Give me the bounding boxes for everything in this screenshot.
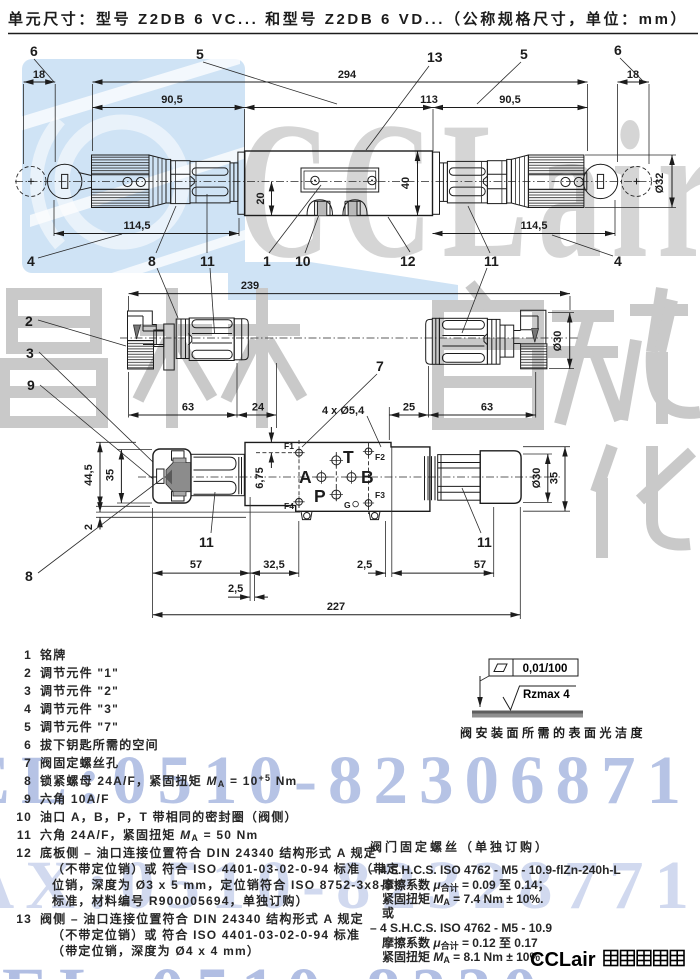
svg-text:63: 63 <box>481 402 493 414</box>
svg-text:调节元件 "1": 调节元件 "1" <box>40 665 119 680</box>
svg-text:239: 239 <box>241 280 259 292</box>
svg-text:阀侧 – 油口连接位置符合 DIN 24340 结构形式 A: 阀侧 – 油口连接位置符合 DIN 24340 结构形式 A 规定 <box>40 911 364 926</box>
svg-text:1: 1 <box>263 253 271 269</box>
svg-text:57: 57 <box>474 559 486 571</box>
svg-text:CCLair: CCLair <box>530 949 596 971</box>
svg-text:Ø30: Ø30 <box>552 331 564 352</box>
svg-text:9: 9 <box>24 792 32 806</box>
svg-text:90,5: 90,5 <box>499 94 520 106</box>
svg-text:F2: F2 <box>375 452 385 462</box>
svg-text:F4: F4 <box>284 501 294 511</box>
svg-text:113: 113 <box>420 94 438 106</box>
svg-text:5: 5 <box>24 720 32 734</box>
svg-text:调节元件 "3": 调节元件 "3" <box>40 701 119 716</box>
svg-text:（不带定位销）或 符合 ISO 4401-03-02-0-9: （不带定位销）或 符合 ISO 4401-03-02-0-94 标准（带定 <box>52 861 400 876</box>
svg-text:3: 3 <box>26 345 34 361</box>
svg-text:4: 4 <box>614 253 622 269</box>
svg-text:– 4 S.H.C.S. ISO 4762 - M5 - 1: – 4 S.H.C.S. ISO 4762 - M5 - 10.9 <box>370 921 552 935</box>
svg-text:或: 或 <box>382 905 394 920</box>
svg-text:9: 9 <box>27 377 35 393</box>
svg-text:调节元件 "7": 调节元件 "7" <box>40 719 119 734</box>
svg-text:阀门固定螺丝（单独订购）: 阀门固定螺丝（单独订购） <box>370 839 550 854</box>
svg-text:11: 11 <box>199 534 214 550</box>
svg-text:6: 6 <box>30 43 38 59</box>
svg-text:44,5: 44,5 <box>83 464 95 485</box>
svg-text:6: 6 <box>614 42 622 58</box>
svg-text:Ø32: Ø32 <box>654 173 666 194</box>
svg-text:13: 13 <box>427 49 443 65</box>
svg-text:2,5: 2,5 <box>357 559 372 571</box>
svg-text:– 4 S.H.C.S. ISO 4762 - M5 - 1: – 4 S.H.C.S. ISO 4762 - M5 - 10.9-flZn-2… <box>370 863 621 877</box>
svg-text:8: 8 <box>24 774 32 788</box>
svg-text:6: 6 <box>24 738 32 752</box>
svg-text:114,5: 114,5 <box>124 220 151 232</box>
svg-text:8: 8 <box>25 568 33 584</box>
svg-text:90,5: 90,5 <box>161 94 182 106</box>
svg-text:20: 20 <box>255 192 267 204</box>
svg-text:4: 4 <box>27 253 35 269</box>
svg-text:32,5: 32,5 <box>263 559 284 571</box>
svg-text:位销，深度为 Ø3 x 5 mm，定位销符合 ISO 875: 位销，深度为 Ø3 x 5 mm，定位销符合 ISO 8752-3x8-St <box>52 877 400 892</box>
svg-text:4: 4 <box>24 702 32 716</box>
svg-text:2: 2 <box>25 313 33 329</box>
svg-text:铭牌: 铭牌 <box>40 647 66 662</box>
svg-text:11: 11 <box>484 253 499 269</box>
svg-text:57: 57 <box>190 559 202 571</box>
svg-text:调节元件 "2": 调节元件 "2" <box>40 683 119 698</box>
svg-text:G: G <box>344 500 351 510</box>
svg-text:（不带定位销）或 符合 ISO 4401-03-02-0-9: （不带定位销）或 符合 ISO 4401-03-02-0-94 标准 <box>52 927 360 942</box>
svg-text:7: 7 <box>24 756 32 770</box>
svg-text:油口 A，B，P，T 带相同的密封圈（阀侧）: 油口 A，B，P，T 带相同的密封圈（阀侧） <box>40 809 298 824</box>
svg-text:Ø30: Ø30 <box>531 468 543 489</box>
svg-text:阀安装面所需的表面光洁度: 阀安装面所需的表面光洁度 <box>460 725 646 740</box>
svg-text:F1: F1 <box>284 441 294 451</box>
svg-text:25: 25 <box>403 402 415 414</box>
svg-text:1: 1 <box>24 648 32 662</box>
svg-text:6,75: 6,75 <box>254 467 266 488</box>
svg-text:227: 227 <box>327 601 345 613</box>
svg-text:35: 35 <box>549 472 561 484</box>
svg-text:六角 10A/F: 六角 10A/F <box>40 791 110 806</box>
svg-text:11: 11 <box>200 253 215 269</box>
svg-text:阀固定螺丝孔: 阀固定螺丝孔 <box>40 755 119 770</box>
svg-text:2: 2 <box>24 666 32 680</box>
svg-text:11: 11 <box>17 828 32 842</box>
svg-text:24: 24 <box>252 402 265 414</box>
svg-text:六角 24A/F，紧固扭矩 MA = 50 Nm: 六角 24A/F，紧固扭矩 MA = 50 Nm <box>40 827 258 843</box>
svg-text:紧固扭矩 MA = 8.1 Nm ± 10%: 紧固扭矩 MA = 8.1 Nm ± 10% <box>382 949 540 965</box>
svg-text:12: 12 <box>16 846 32 860</box>
svg-text:A: A <box>299 467 312 487</box>
svg-text:2: 2 <box>83 524 95 530</box>
svg-text:7: 7 <box>376 358 384 374</box>
svg-text:114,5: 114,5 <box>521 220 548 232</box>
svg-text:10: 10 <box>295 253 311 269</box>
svg-text:11: 11 <box>477 534 492 550</box>
svg-text:摩擦系数 μ合计 = 0.09 至 0.14；: 摩擦系数 μ合计 = 0.09 至 0.14； <box>382 877 550 893</box>
svg-text:摩擦系数 μ合计 = 0.12 至 0.17: 摩擦系数 μ合计 = 0.12 至 0.17 <box>382 935 538 951</box>
svg-text:Rzmax 4: Rzmax 4 <box>523 689 570 701</box>
svg-text:8: 8 <box>148 253 156 269</box>
svg-text:5: 5 <box>520 46 528 62</box>
svg-text:3: 3 <box>24 684 32 698</box>
svg-text:0,01/100: 0,01/100 <box>523 663 568 675</box>
svg-text:P: P <box>314 486 326 506</box>
svg-text:10: 10 <box>16 810 32 824</box>
svg-text:2,5: 2,5 <box>228 583 243 595</box>
svg-text:标准，材料编号 R900005694，单独订购）: 标准，材料编号 R900005694，单独订购） <box>51 893 309 908</box>
svg-text:294: 294 <box>338 69 357 81</box>
svg-text:13: 13 <box>16 912 32 926</box>
svg-text:12: 12 <box>400 253 416 269</box>
svg-text:18: 18 <box>33 69 45 81</box>
svg-text:40: 40 <box>400 177 412 189</box>
svg-text:底板侧 – 油口连接位置符合 DIN 24340 结构形式: 底板侧 – 油口连接位置符合 DIN 24340 结构形式 A 规定 <box>40 845 377 860</box>
svg-text:单元尺寸：型号 Z2DB 6 VC... 和型号 Z2DB: 单元尺寸：型号 Z2DB 6 VC... 和型号 Z2DB 6 VD...（公称… <box>8 10 688 28</box>
svg-text:（带定位销，深度为 Ø4 x 4 mm）: （带定位销，深度为 Ø4 x 4 mm） <box>52 943 260 958</box>
svg-text:35: 35 <box>105 469 117 481</box>
svg-text:T: T <box>343 447 354 467</box>
svg-text:B: B <box>361 467 374 487</box>
svg-text:F3: F3 <box>375 490 385 500</box>
svg-text:5: 5 <box>196 46 204 62</box>
svg-text:63: 63 <box>182 402 194 414</box>
svg-text:拔下钥匙所需的空间: 拔下钥匙所需的空间 <box>40 737 159 752</box>
svg-text:紧固扭矩 MA = 7.4 Nm ± 10%.: 紧固扭矩 MA = 7.4 Nm ± 10%. <box>382 891 543 907</box>
